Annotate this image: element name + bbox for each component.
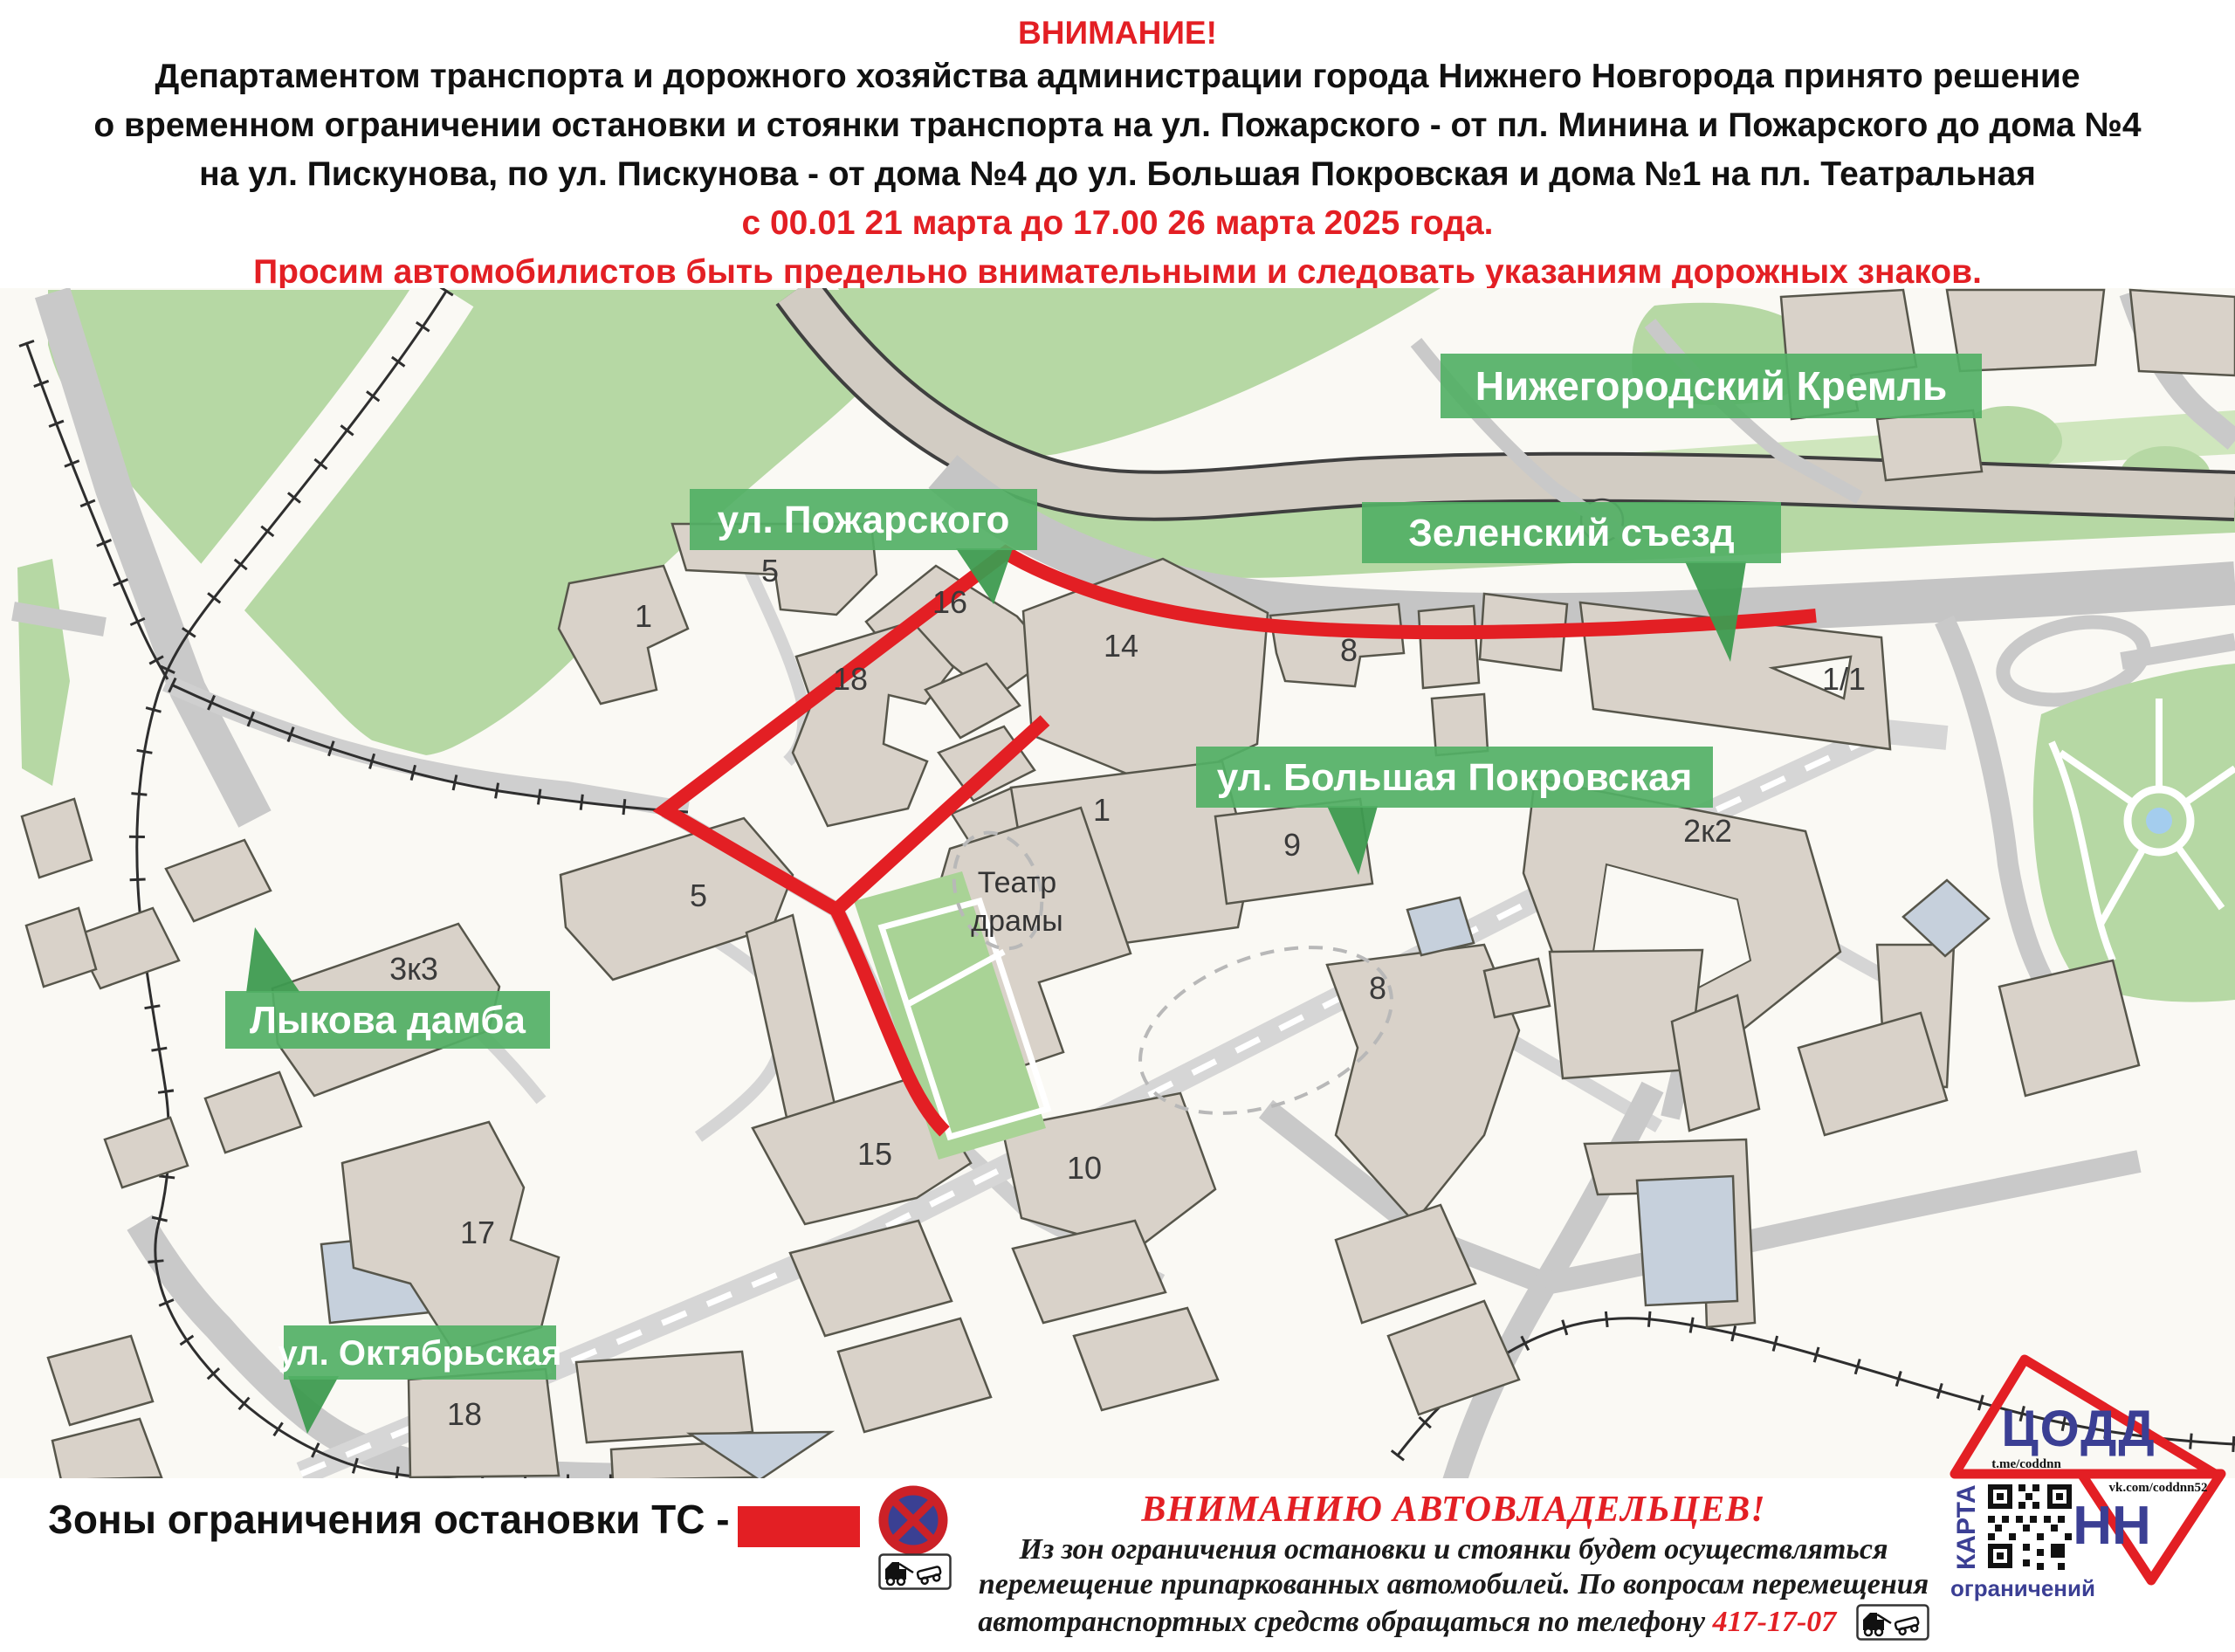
building-number: 15 bbox=[857, 1136, 892, 1172]
building-number: 17 bbox=[460, 1215, 495, 1250]
banner-oktyabrskaya-label: ул. Октябрьская bbox=[279, 1334, 562, 1373]
header-line-4: на ул. Пискунова, по ул. Пискунова - от … bbox=[0, 150, 2235, 199]
header-line-3: о временном ограничении остановки и стоя… bbox=[0, 101, 2235, 150]
building-number: 1 bbox=[635, 598, 652, 634]
header: ВНИМАНИЕ! Департаментом транспорта и дор… bbox=[0, 0, 2235, 288]
banner-lykova-label: Лыкова дамба bbox=[250, 999, 526, 1042]
tow-truck-sign-icon bbox=[878, 1553, 952, 1590]
legend: Зоны ограничения остановки ТС - ВНИМАНИЮ… bbox=[0, 1478, 2235, 1652]
building-number: 18 bbox=[447, 1396, 482, 1432]
building-number: 8 bbox=[1369, 970, 1386, 1006]
building-number: 10 bbox=[1067, 1150, 1102, 1186]
attention-line-3-text: автотранспортных средств обращаться по т… bbox=[978, 1606, 1705, 1638]
legend-red-swatch bbox=[738, 1506, 860, 1547]
building-number: 8 bbox=[1340, 632, 1358, 668]
building-number: 1/1 bbox=[1822, 661, 1866, 697]
logo-karta: КАРТА bbox=[1952, 1484, 1981, 1570]
building-number: 5 bbox=[761, 553, 779, 589]
round-park bbox=[2033, 664, 2235, 1002]
building-number: 16 bbox=[932, 584, 967, 620]
banner-pozharskogo-label: ул. Пожарского bbox=[718, 499, 1010, 541]
codd-logo: ЦОДД t.me/coddnn vk.com/coddnn52 НН КАРТ… bbox=[1949, 1352, 2235, 1644]
attention-title: ВНИМАНИЮ АВТОВЛАДЕЛЬЦЕВ! bbox=[960, 1489, 1947, 1531]
logo-org: ЦОДД bbox=[2001, 1401, 2156, 1457]
building-number: 14 bbox=[1104, 628, 1138, 664]
tow-truck-icon bbox=[1856, 1603, 1929, 1642]
pond bbox=[2146, 808, 2172, 834]
attention-line-3: автотранспортных средств обращаться по т… bbox=[960, 1603, 1947, 1642]
attention-line-2: перемещение припаркованных автомобилей. … bbox=[960, 1568, 1947, 1600]
building-number: 3к3 bbox=[389, 951, 438, 987]
building-number: 5 bbox=[690, 878, 707, 913]
building-number: 2к2 bbox=[1683, 813, 1732, 849]
logo-ogranicheniy: ограничений bbox=[1950, 1575, 2095, 1601]
banner-zelensky-label: Зеленский съезд bbox=[1408, 512, 1735, 554]
logo-vk: vk.com/coddnn52 bbox=[2109, 1481, 2208, 1495]
building-number: 9 bbox=[1283, 827, 1301, 863]
map-canvas: Нижегородский Кремль ул. Пожарского Зеле… bbox=[0, 288, 2235, 1480]
header-title: ВНИМАНИЕ! bbox=[0, 14, 2235, 52]
attention-block: ВНИМАНИЮ АВТОВЛАДЕЛЬЦЕВ! Из зон ограниче… bbox=[960, 1478, 1947, 1642]
attention-phone: 417-17-07 bbox=[1713, 1606, 1837, 1638]
qr-code bbox=[1986, 1483, 2073, 1570]
logo-region: НН bbox=[2073, 1496, 2151, 1556]
banner-kremlin-label: Нижегородский Кремль bbox=[1475, 363, 1948, 409]
building-number: 1 bbox=[1093, 792, 1111, 828]
theater-label-line2: драмы bbox=[971, 905, 1062, 938]
poster: ВНИМАНИЕ! Департаментом транспорта и дор… bbox=[0, 0, 2235, 1652]
banner-pokrovskaya-label: ул. Большая Покровская bbox=[1217, 756, 1693, 799]
building-number: 18 bbox=[833, 661, 868, 697]
header-dates: с 00.01 21 марта до 17.00 26 марта 2025 … bbox=[0, 199, 2235, 248]
city-map: Нижегородский Кремль ул. Пожарского Зеле… bbox=[0, 288, 2235, 1480]
header-line-2: Департаментом транспорта и дорожного хоз… bbox=[0, 52, 2235, 101]
no-stopping-sign-icon bbox=[878, 1485, 948, 1555]
logo-telegram: t.me/coddnn bbox=[1991, 1457, 2061, 1471]
theater-label-line1: Театр bbox=[978, 866, 1056, 899]
legend-zones-label: Зоны ограничения остановки ТС - bbox=[48, 1496, 730, 1543]
attention-line-1: Из зон ограничения остановки и стоянки б… bbox=[960, 1533, 1947, 1566]
